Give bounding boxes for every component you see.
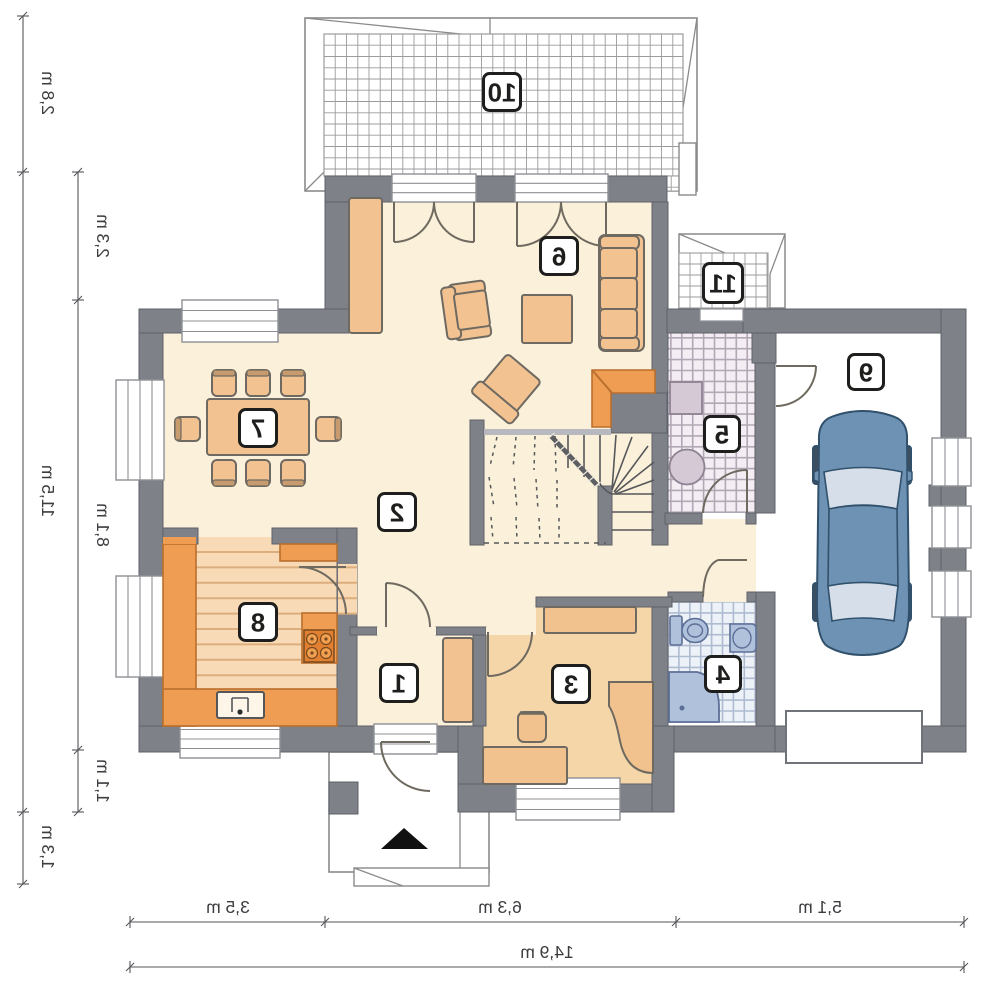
- svg-text:14,9 m: 14,9 m: [520, 942, 574, 962]
- svg-text:1: 1: [392, 669, 406, 699]
- svg-text:1,1 m: 1,1 m: [93, 759, 113, 803]
- svg-text:2,8 m: 2,8 m: [38, 71, 58, 115]
- svg-text:6,3 m: 6,3 m: [478, 897, 522, 917]
- svg-text:6: 6: [552, 242, 566, 272]
- svg-text:2: 2: [390, 498, 404, 528]
- svg-text:1,3 m: 1,3 m: [38, 825, 58, 869]
- svg-text:11,5 m: 11,5 m: [38, 465, 58, 517]
- svg-text:2,3 m: 2,3 m: [93, 214, 113, 258]
- svg-text:8,1 m: 8,1 m: [93, 503, 113, 547]
- svg-text:11: 11: [709, 269, 737, 299]
- svg-text:5: 5: [715, 420, 729, 450]
- svg-text:10: 10: [488, 78, 517, 108]
- svg-text:3,5 m: 3,5 m: [206, 897, 250, 917]
- svg-text:5,1 m: 5,1 m: [798, 897, 842, 917]
- svg-text:9: 9: [859, 358, 873, 388]
- svg-text:3: 3: [564, 670, 578, 700]
- svg-text:8: 8: [251, 608, 265, 638]
- svg-text:7: 7: [251, 414, 265, 444]
- svg-text:4: 4: [715, 660, 730, 690]
